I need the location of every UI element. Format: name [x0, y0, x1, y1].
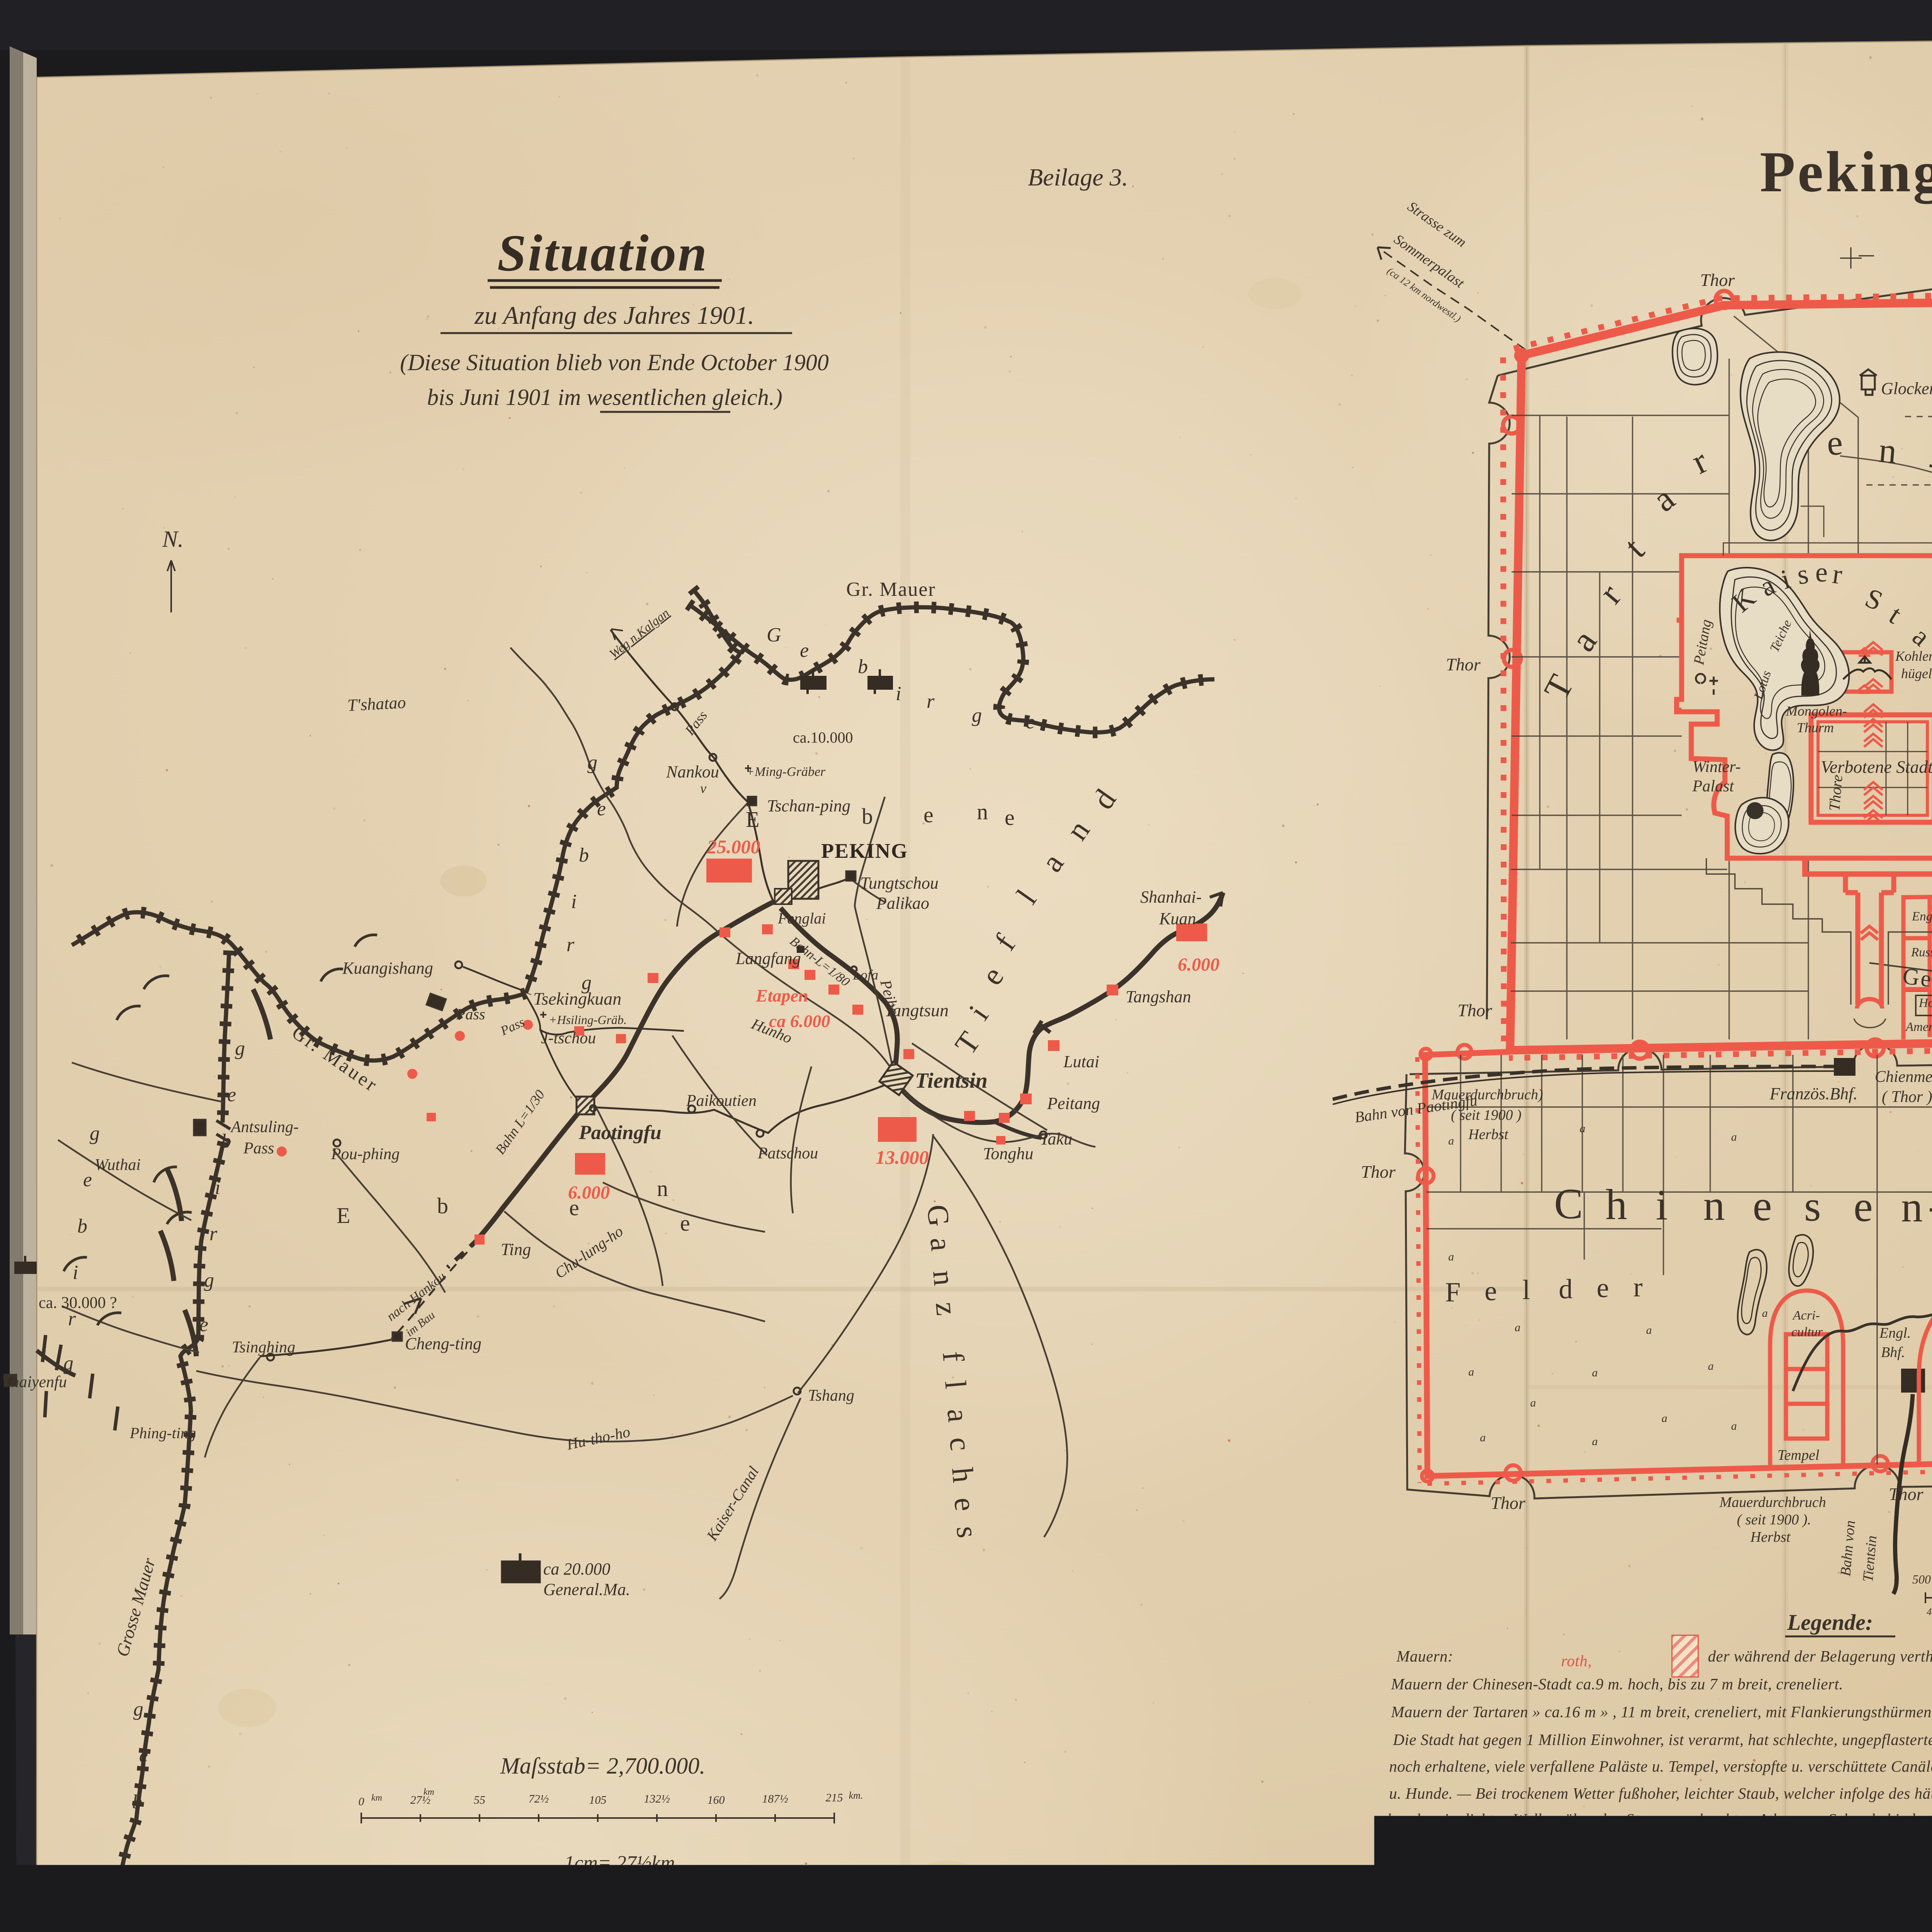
svg-text:v: v [700, 781, 706, 796]
svg-text:n: n [1901, 1183, 1923, 1231]
svg-text:a: a [1592, 1366, 1598, 1379]
svg-text:ca. 30.000 ?: ca. 30.000 ? [39, 1294, 117, 1312]
svg-text:Patschou: Patschou [757, 1145, 818, 1162]
svg-text:r: r [68, 1308, 76, 1330]
svg-text:e: e [597, 798, 606, 820]
svg-text:0: 0 [359, 1795, 364, 1808]
svg-text:(Diese Situation blieb von End: (Diese Situation blieb von Ende October … [400, 350, 829, 375]
svg-text:e: e [923, 802, 934, 827]
svg-text:105: 105 [589, 1794, 607, 1806]
svg-text:u. Hunde. — Bei trockenem Wett: u. Hunde. — Bei trockenem Wetter fußhohe… [1389, 1784, 1932, 1802]
svg-text:Palikao: Palikao [876, 894, 929, 913]
svg-text:e: e [800, 639, 809, 662]
svg-text:55: 55 [474, 1794, 485, 1806]
svg-text:s: s [1804, 1182, 1821, 1230]
svg-text:Lofa: Lofa [852, 967, 878, 983]
svg-text:N.: N. [162, 526, 184, 552]
svg-text:a: a [1731, 1420, 1737, 1432]
svg-text:a: a [1530, 1396, 1536, 1409]
svg-text:T'shatao: T'shatao [347, 693, 406, 715]
svg-text:J-tschou: J-tschou [541, 1029, 596, 1047]
svg-text:a: a [1480, 1431, 1486, 1444]
svg-text:Verbotene Stadt: Verbotene Stadt [1821, 757, 1932, 777]
svg-text:e: e [1854, 1183, 1873, 1231]
svg-text:b: b [579, 844, 589, 866]
svg-text:Herbst: Herbst [1468, 1126, 1509, 1143]
svg-text:Holl.: Holl. [1918, 996, 1932, 1010]
svg-text:Shanhai-: Shanhai- [1140, 888, 1202, 906]
svg-text:bis Juni 1901 im wesentlichen: bis Juni 1901 im wesentlichen gleich.) [427, 384, 782, 410]
svg-text:e: e [569, 1195, 579, 1220]
svg-text:zu Anfang des Jahres 1901.: zu Anfang des Jahres 1901. [474, 301, 754, 330]
svg-text:b: b [437, 1193, 448, 1218]
svg-text:b: b [77, 1215, 87, 1237]
svg-text:187½: 187½ [762, 1793, 788, 1805]
svg-text:g: g [204, 1269, 214, 1291]
svg-text:roth,: roth, [1561, 1652, 1592, 1670]
svg-text:72½: 72½ [529, 1793, 549, 1805]
svg-text:b: b [221, 1130, 231, 1152]
svg-text:Thor: Thor [1889, 1484, 1924, 1504]
svg-text:r: r [209, 1223, 218, 1245]
svg-text:Kuangishang: Kuangishang [342, 959, 433, 978]
svg-text:Tsinghing: Tsinghing [232, 1338, 295, 1356]
svg-text:n: n [657, 1176, 668, 1201]
svg-text:g: g [582, 972, 592, 994]
svg-text:i: i [571, 891, 577, 913]
svg-text:terten Strassen, gemauerten, g: terten Strassen, gemauerten, gedeckten C… [1379, 1889, 1932, 1906]
svg-text:n: n [977, 799, 988, 824]
svg-text:Französ.Bhf.: Französ.Bhf. [1769, 1084, 1857, 1103]
svg-text:Chienmen: Chienmen [1875, 1068, 1932, 1086]
svg-text:g: g [235, 1037, 245, 1060]
svg-text:Bhf.: Bhf. [1881, 1344, 1905, 1361]
svg-text:Etapen: Etapen [755, 986, 808, 1005]
svg-text:F: F [1445, 1277, 1461, 1308]
svg-text:Maſsstab= 2,700.000.: Maſsstab= 2,700.000. [500, 1753, 706, 1779]
svg-text:b: b [862, 804, 873, 829]
svg-text:g: g [587, 752, 597, 774]
svg-text:d: d [1559, 1274, 1573, 1304]
svg-text:a: a [1468, 1366, 1474, 1378]
svg-text:e: e [199, 1314, 208, 1336]
svg-text:Kuan: Kuan [1159, 909, 1196, 928]
svg-text:-: - [1928, 1182, 1932, 1230]
svg-text:a: a [1708, 1360, 1714, 1372]
svg-text:der während der Belagerung ver: der während der Belagerung vertheidigte … [1708, 1647, 1932, 1665]
svg-text:Mauern:: Mauern: [1396, 1647, 1453, 1665]
svg-text:Thore: Thore [1825, 774, 1846, 812]
svg-text:brochen in dichten Wolken über: brochen in dichten Wolken über den Stras… [1387, 1810, 1932, 1828]
svg-text:e: e [1753, 1182, 1772, 1230]
svg-text:Tangshan: Tangshan [1126, 987, 1191, 1006]
svg-text:Ting: Ting [501, 1240, 531, 1259]
svg-text:Nankou: Nankou [666, 762, 719, 781]
svg-text:132½: 132½ [644, 1793, 670, 1805]
svg-text:e: e [227, 1084, 236, 1106]
svg-text:Regierungsbeginn der jetzigen: Regierungsbeginn der jetzigen Mandschu-D… [1381, 1915, 1780, 1932]
svg-text:Mauern der Chinesen-Stadt ca.9: Mauern der Chinesen-Stadt ca.9 m. hoch, … [1391, 1675, 1843, 1693]
svg-text:ca.10.000: ca.10.000 [793, 729, 853, 746]
svg-text:Thaiyenfu: Thaiyenfu [2, 1373, 67, 1391]
svg-text:Engl.: Engl. [1912, 910, 1932, 923]
svg-text:r: r [566, 934, 575, 956]
svg-text:ca 20.000: ca 20.000 [543, 1560, 611, 1578]
svg-text:Legende:: Legende: [1787, 1610, 1873, 1635]
svg-text:Paikoutien: Paikoutien [686, 1092, 757, 1110]
svg-text:( seit 1900 ).: ( seit 1900 ). [1737, 1512, 1811, 1528]
svg-text:i: i [1656, 1181, 1668, 1229]
svg-text:Tungtschou: Tungtschou [860, 874, 939, 893]
svg-text:b: b [858, 656, 868, 678]
svg-text:General.Ma.: General.Ma. [543, 1580, 630, 1599]
svg-text:Winter-: Winter- [1692, 758, 1741, 776]
svg-text:km: km [371, 1793, 382, 1803]
svg-text:i: i [73, 1262, 78, 1284]
svg-text:e: e [83, 1169, 92, 1191]
svg-text:Gr. Mauer: Gr. Mauer [846, 578, 936, 600]
svg-text:a: a [1448, 1134, 1454, 1147]
svg-text:Tonghu: Tonghu [983, 1144, 1033, 1163]
svg-text:r: r [927, 690, 935, 713]
svg-text:g: g [972, 704, 982, 726]
svg-text:n: n [1877, 430, 1898, 471]
svg-text:a: a [1662, 1412, 1667, 1425]
svg-text:( Thor ): ( Thor ) [1882, 1088, 1932, 1106]
svg-text:E: E [746, 807, 759, 832]
svg-text:i: i [215, 1177, 220, 1199]
svg-text:Thor: Thor [1700, 270, 1735, 290]
svg-text:+Hsiling-Gräb.: +Hsiling-Gräb. [549, 1013, 627, 1027]
svg-text:a: a [1731, 1131, 1737, 1143]
svg-text:G: G [921, 1203, 956, 1228]
svg-text:e: e [1005, 805, 1015, 830]
svg-text:Russ.: Russ. [1911, 946, 1932, 959]
svg-text:Peitang: Peitang [1047, 1094, 1100, 1113]
svg-text:Tsekingkuan: Tsekingkuan [533, 989, 621, 1009]
svg-text:Langfang: Langfang [735, 949, 801, 968]
svg-text:b: b [132, 1791, 142, 1813]
svg-text:cultur: cultur [1791, 1325, 1823, 1339]
svg-text:e: e [1485, 1276, 1497, 1306]
svg-text:Situation: Situation [497, 224, 708, 282]
svg-text:Verbündete.: Verbündete. [571, 1917, 677, 1932]
svg-text:i: i [896, 683, 901, 705]
svg-text:+Ming-Gräber: +Ming-Gräber [746, 765, 826, 779]
svg-text:bleiben selbst leichte Fuhrwer: bleiben selbst leichte Fuhrwerke stecken… [1389, 1836, 1658, 1854]
svg-text:6.000: 6.000 [1178, 954, 1219, 975]
svg-text:e: e [1597, 1272, 1609, 1303]
svg-text:Palast: Palast [1692, 777, 1735, 795]
svg-text:a: a [1592, 1435, 1598, 1448]
svg-text:km.: km. [849, 1790, 863, 1801]
svg-text:Mongolen-: Mongolen- [1786, 703, 1847, 719]
svg-text:r: r [1633, 1272, 1643, 1303]
svg-text:C: C [1554, 1180, 1583, 1228]
svg-text:e: e [1825, 422, 1844, 463]
svg-text:a: a [1580, 1122, 1585, 1135]
svg-text:Pou-phing: Pou-phing [331, 1145, 400, 1163]
svg-text:e: e [1815, 557, 1828, 588]
svg-text:hügel: hügel [1901, 666, 1932, 681]
svg-text:g: g [133, 1698, 143, 1720]
svg-text:G: G [767, 624, 781, 646]
svg-text:Amerik.: Amerik. [1905, 1020, 1932, 1034]
svg-text:Fenglai: Fenglai [777, 910, 826, 927]
svg-text:E: E [337, 1203, 350, 1228]
svg-text:13.000: 13.000 [876, 1146, 929, 1168]
svg-text:Tientsin: Tientsin [915, 1069, 988, 1093]
svg-text:Mauern der Tartaren » ca.1: Mauern der Tartaren » ca.16 m » , 11 m b… [1391, 1703, 1932, 1721]
svg-text:1cm= 27½km.: 1cm= 27½km. [564, 1852, 680, 1874]
svg-text:Taku: Taku [1040, 1129, 1072, 1148]
svg-text:Phing-ting: Phing-ting [129, 1424, 196, 1442]
svg-text:Mauerdurchbruch: Mauerdurchbruch [1719, 1494, 1826, 1510]
svg-text:h: h [1605, 1181, 1627, 1229]
svg-text:Peking wurde im J. 1279 von Ka: Peking wurde im J. 1279 von Kaiser Kubla… [1382, 1863, 1932, 1881]
svg-text:g: g [63, 1352, 73, 1374]
svg-text:Beilage 3.: Beilage 3. [1028, 163, 1128, 191]
svg-text:Pass: Pass [456, 1005, 485, 1023]
svg-text:Tempel: Tempel [1777, 1447, 1819, 1463]
svg-text:e: e [1026, 711, 1035, 733]
svg-text:a: a [1448, 1250, 1454, 1263]
svg-text:Glockenthurm: Glockenthurm [1881, 379, 1932, 398]
svg-text:Acri-: Acri- [1792, 1308, 1820, 1323]
svg-text:Wuthai: Wuthai [95, 1156, 141, 1174]
svg-text:Pass: Pass [243, 1139, 274, 1157]
svg-text:Lutai: Lutai [1063, 1052, 1099, 1071]
svg-text:Kohlen-: Kohlen- [1895, 648, 1932, 664]
svg-text:Cheng-ting: Cheng-ting [405, 1334, 481, 1353]
svg-text:Thurm: Thurm [1797, 720, 1834, 735]
svg-text:Engl.: Engl. [1879, 1325, 1911, 1341]
svg-text:4 3 2 1: 4 3 2 1 [1927, 1606, 1932, 1617]
svg-text:noch erhaltene, viele verfalle: noch erhaltene, viele verfallene Paläste… [1389, 1757, 1932, 1775]
svg-text:a: a [1646, 1324, 1652, 1337]
svg-text:e: e [139, 1745, 148, 1767]
svg-text:h: h [946, 1466, 980, 1484]
svg-text:500: 500 [1912, 1572, 1931, 1586]
svg-text:km: km [423, 1787, 434, 1797]
svg-text:g: g [90, 1122, 100, 1145]
svg-text:n: n [927, 1269, 961, 1287]
svg-text:Tschan-ping: Tschan-ping [767, 796, 850, 815]
svg-text:n: n [1703, 1182, 1725, 1230]
svg-text:Thor: Thor [1491, 1493, 1526, 1513]
svg-text:Herbst: Herbst [1750, 1529, 1791, 1545]
svg-text:a: a [1762, 1307, 1768, 1320]
svg-text:Thor: Thor [1446, 655, 1481, 674]
svg-text:Paotingfu: Paotingfu [578, 1122, 662, 1144]
svg-text:a: a [1515, 1321, 1520, 1334]
svg-text:215: 215 [826, 1791, 843, 1804]
svg-text:Thor: Thor [1361, 1162, 1396, 1182]
svg-text:Die Stadt hat gegen 1 Million: Die Stadt hat gegen 1 Million Einwohner,… [1393, 1731, 1932, 1748]
svg-text:Antsuling-: Antsuling- [230, 1118, 299, 1136]
svg-text:160: 160 [707, 1794, 725, 1806]
svg-text:25.000: 25.000 [707, 836, 760, 857]
svg-text:Tshang: Tshang [808, 1387, 854, 1405]
svg-text:l: l [1522, 1274, 1530, 1305]
svg-text:e: e [680, 1211, 690, 1236]
svg-text:Peking.: Peking. [1760, 140, 1932, 204]
svg-text:PEKING: PEKING [821, 839, 908, 862]
svg-text:Thor: Thor [1458, 1000, 1493, 1020]
